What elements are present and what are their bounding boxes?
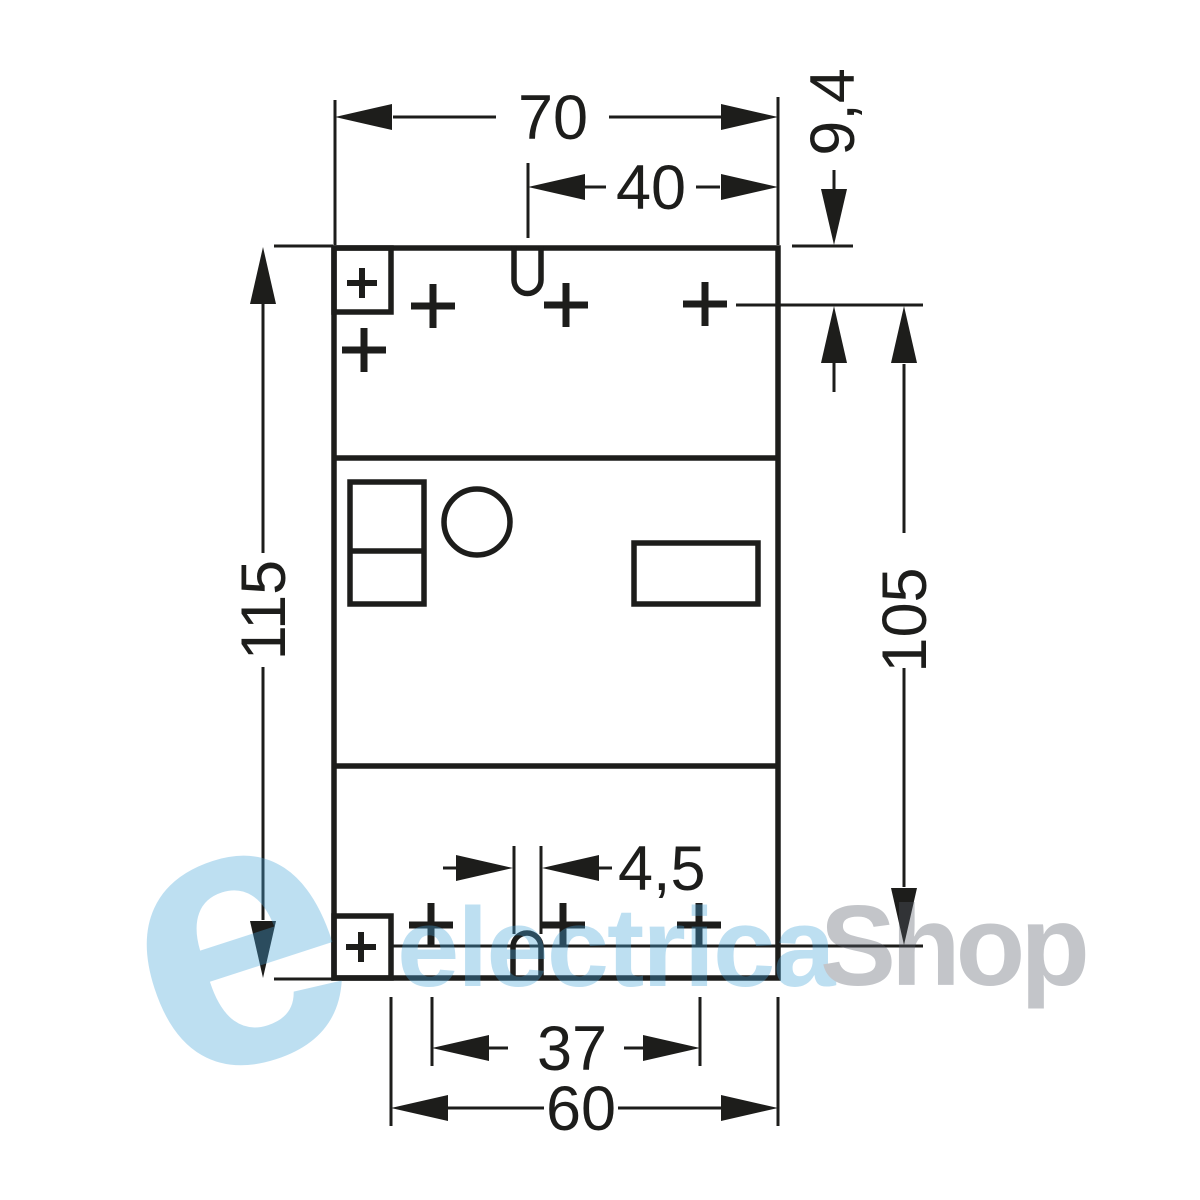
arrowhead-icon xyxy=(250,921,276,978)
technical-drawing: 70 40 9,4 115 xyxy=(0,0,1200,1200)
mounting-cross-icon xyxy=(677,903,721,947)
dimension-drawing-canvas: 70 40 9,4 115 xyxy=(0,0,1200,1200)
mounting-cross-icon xyxy=(347,268,377,298)
front-label-window xyxy=(634,543,758,604)
arrowhead-icon xyxy=(821,189,847,245)
top-din-slot xyxy=(514,246,541,294)
front-switch-block xyxy=(350,482,424,604)
mounting-cross-icon xyxy=(346,932,376,962)
dim-overall-width: 70 xyxy=(335,83,778,245)
dim-overall-height: 115 xyxy=(229,246,333,979)
mounting-cross-icon xyxy=(409,903,453,947)
arrowhead-icon xyxy=(721,1095,778,1121)
dim-slot-width: 4,5 xyxy=(443,834,706,934)
arrowhead-icon xyxy=(391,1095,448,1121)
mounting-cross-icon xyxy=(411,284,455,328)
dim-hole-span-width: 37 xyxy=(432,997,700,1084)
arrowhead-icon xyxy=(821,306,847,363)
arrowhead-icon xyxy=(335,104,392,130)
dim-label-105: 105 xyxy=(870,567,940,672)
mounting-cross-icon xyxy=(544,283,588,327)
dim-label-115: 115 xyxy=(229,560,299,660)
dim-label-60: 60 xyxy=(546,1074,616,1144)
mounting-cross-icon xyxy=(541,903,585,947)
arrowhead-icon xyxy=(456,855,513,881)
arrowhead-icon xyxy=(643,1035,700,1061)
arrowhead-icon xyxy=(432,1035,489,1061)
dim-label-40: 40 xyxy=(616,153,686,223)
arrowhead-icon xyxy=(542,855,599,881)
dim-label-4-5: 4,5 xyxy=(618,834,706,904)
mounting-cross-icon xyxy=(342,328,386,372)
arrowhead-icon xyxy=(721,104,778,130)
arrowhead-icon xyxy=(891,888,917,945)
arrowhead-icon xyxy=(721,174,778,200)
dim-label-9-4: 9,4 xyxy=(798,68,868,156)
dim-slot-to-edge: 40 xyxy=(528,153,778,238)
arrowhead-icon xyxy=(528,174,585,200)
arrowhead-icon xyxy=(891,306,917,363)
mounting-cross-icon xyxy=(683,282,727,326)
dim-label-70: 70 xyxy=(518,83,588,153)
arrowhead-icon xyxy=(250,247,276,304)
bottom-din-slot xyxy=(513,933,541,978)
front-button-circle xyxy=(444,489,510,555)
